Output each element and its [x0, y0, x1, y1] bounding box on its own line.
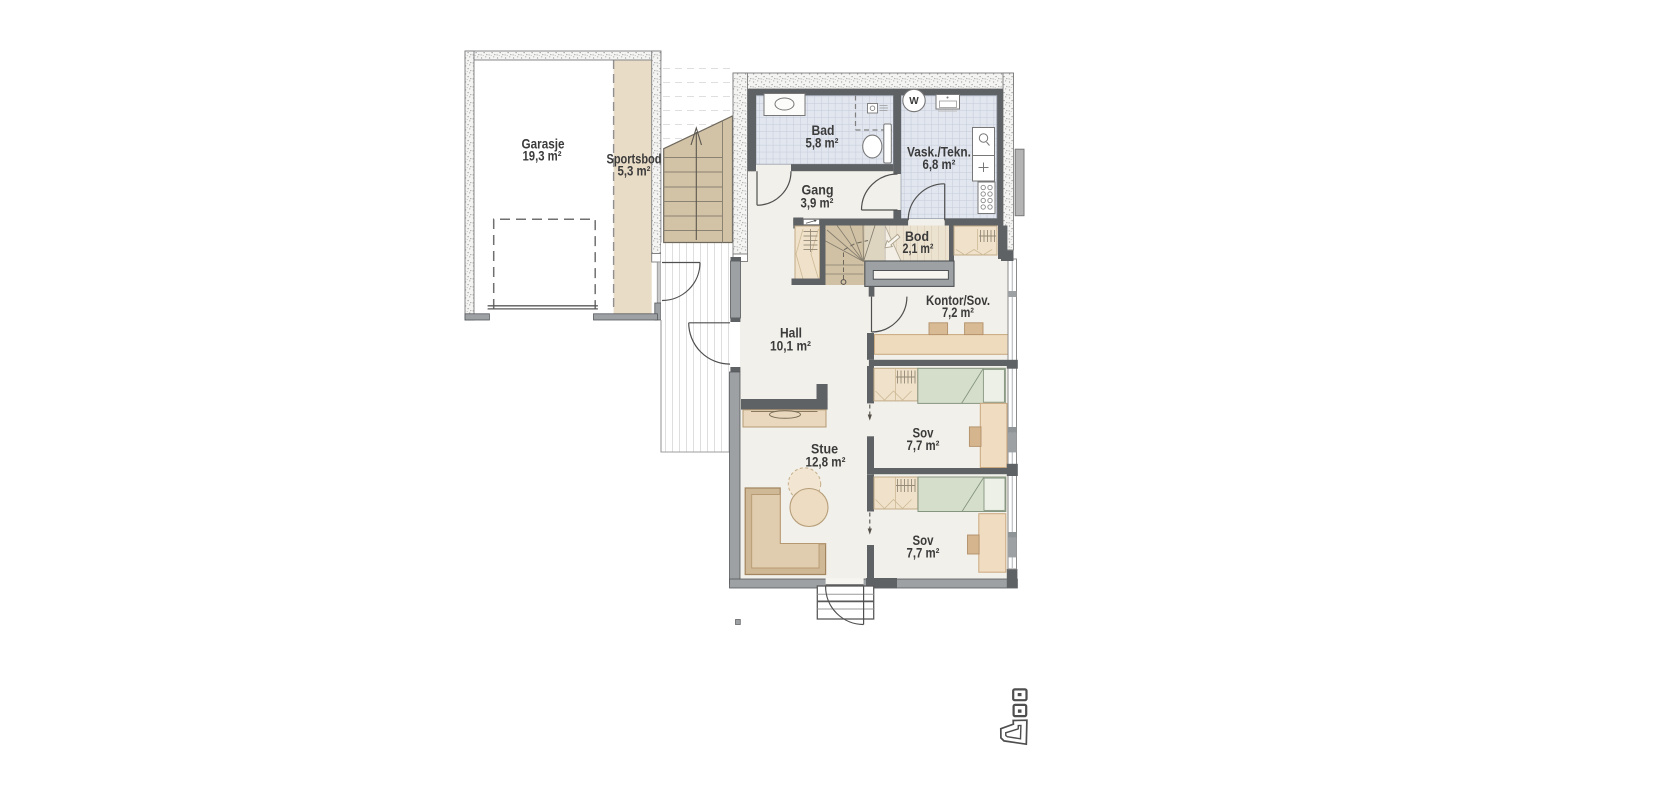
svg-text:6,8 m²: 6,8 m²	[923, 157, 956, 172]
svg-text:5,3 m²: 5,3 m²	[618, 164, 651, 179]
svg-text:7,2 m²: 7,2 m²	[942, 305, 974, 320]
svg-text:7,7 m²: 7,7 m²	[907, 546, 940, 561]
svg-text:12,8 m²: 12,8 m²	[806, 455, 846, 470]
svg-text:3,9 m²: 3,9 m²	[801, 196, 834, 211]
svg-text:7,7 m²: 7,7 m²	[907, 438, 940, 453]
svg-text:19,3 m²: 19,3 m²	[523, 149, 562, 164]
svg-text:2,1 m²: 2,1 m²	[903, 241, 934, 256]
svg-text:10,1 m²: 10,1 m²	[770, 339, 811, 354]
svg-text:5,8 m²: 5,8 m²	[806, 136, 839, 151]
svg-text:W: W	[909, 96, 919, 107]
